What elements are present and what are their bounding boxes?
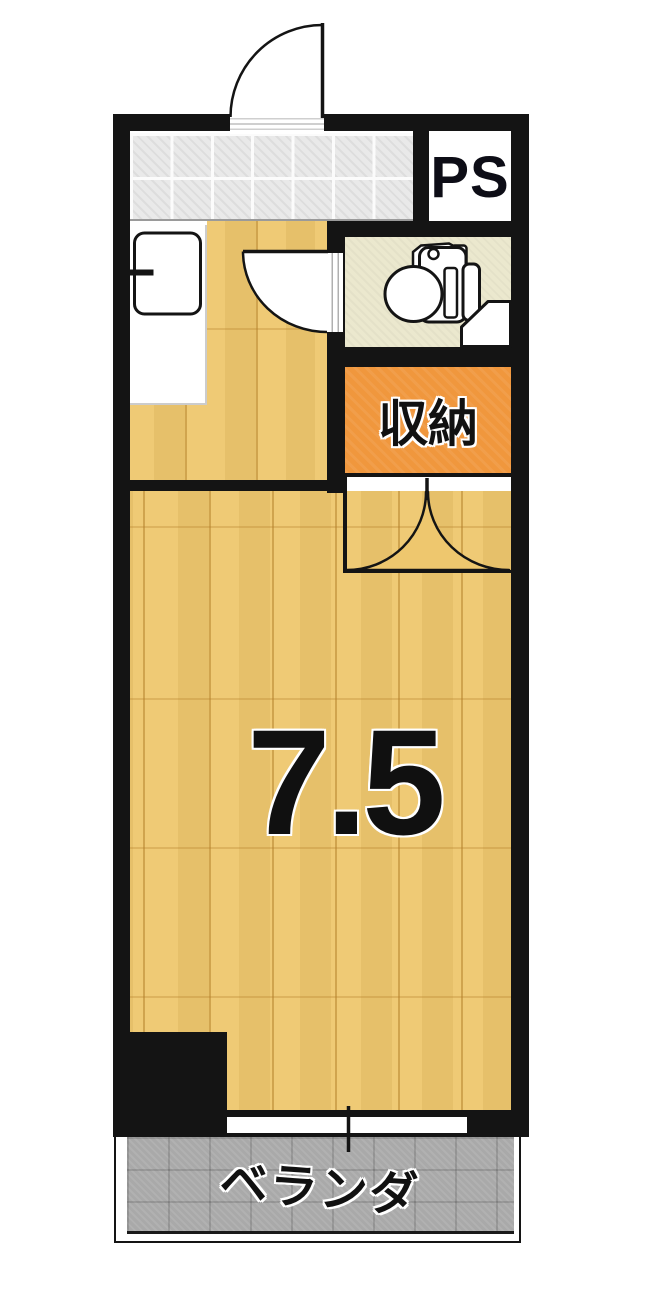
flush-button-icon [429,249,439,259]
hall-door [243,252,328,333]
toilet-bowl-icon [385,267,442,322]
toilet-icon [385,244,480,323]
floorplan: PS 収納 7.5 ベランダ [0,0,648,1308]
room-size-label: 7.5 [194,710,494,855]
entrance-door [231,23,323,118]
plan-vector-layer [0,0,648,1308]
pipe-space-label: PS [429,137,511,217]
faucet-icon [125,270,154,276]
kitchen-sink [125,233,201,314]
storage-label: 収納 [345,367,511,473]
closet-double-doors [347,478,509,570]
